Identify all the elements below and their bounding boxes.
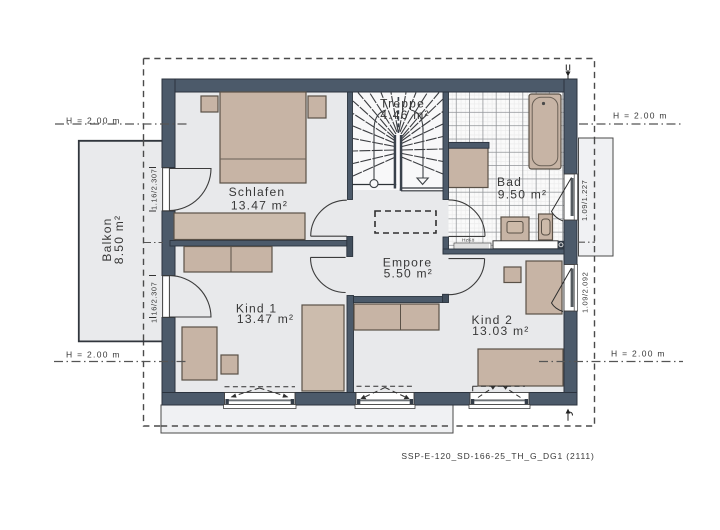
svg-text:5.50 m²: 5.50 m² <box>384 266 433 280</box>
svg-text:1.09/2.092: 1.09/2.092 <box>581 272 590 313</box>
svg-text:9.50 m²: 9.50 m² <box>498 187 547 201</box>
svg-text:4.46 m²: 4.46 m² <box>380 108 429 122</box>
svg-text:13.47 m²: 13.47 m² <box>231 198 288 212</box>
svg-text:H = 2.00 m: H = 2.00 m <box>613 111 668 121</box>
svg-text:HzKö: HzKö <box>462 238 475 244</box>
svg-text:H = 2.00 m: H = 2.00 m <box>611 349 666 359</box>
svg-text:1.16/2.307: 1.16/2.307 <box>150 282 159 323</box>
svg-text:1.16/2.307: 1.16/2.307 <box>150 169 159 210</box>
svg-text:H = 2.00 m: H = 2.00 m <box>66 350 121 360</box>
svg-text:13.03 m²: 13.03 m² <box>472 324 529 338</box>
svg-text:Schlafen: Schlafen <box>229 185 286 199</box>
svg-text:1.09/1.227: 1.09/1.227 <box>580 180 589 221</box>
svg-text:SSP-E-120_SD-166-25_TH_G_DG1 (: SSP-E-120_SD-166-25_TH_G_DG1 (2111) <box>401 451 594 461</box>
svg-text:13.47 m²: 13.47 m² <box>237 312 294 326</box>
svg-text:8.50 m²: 8.50 m² <box>112 215 126 264</box>
